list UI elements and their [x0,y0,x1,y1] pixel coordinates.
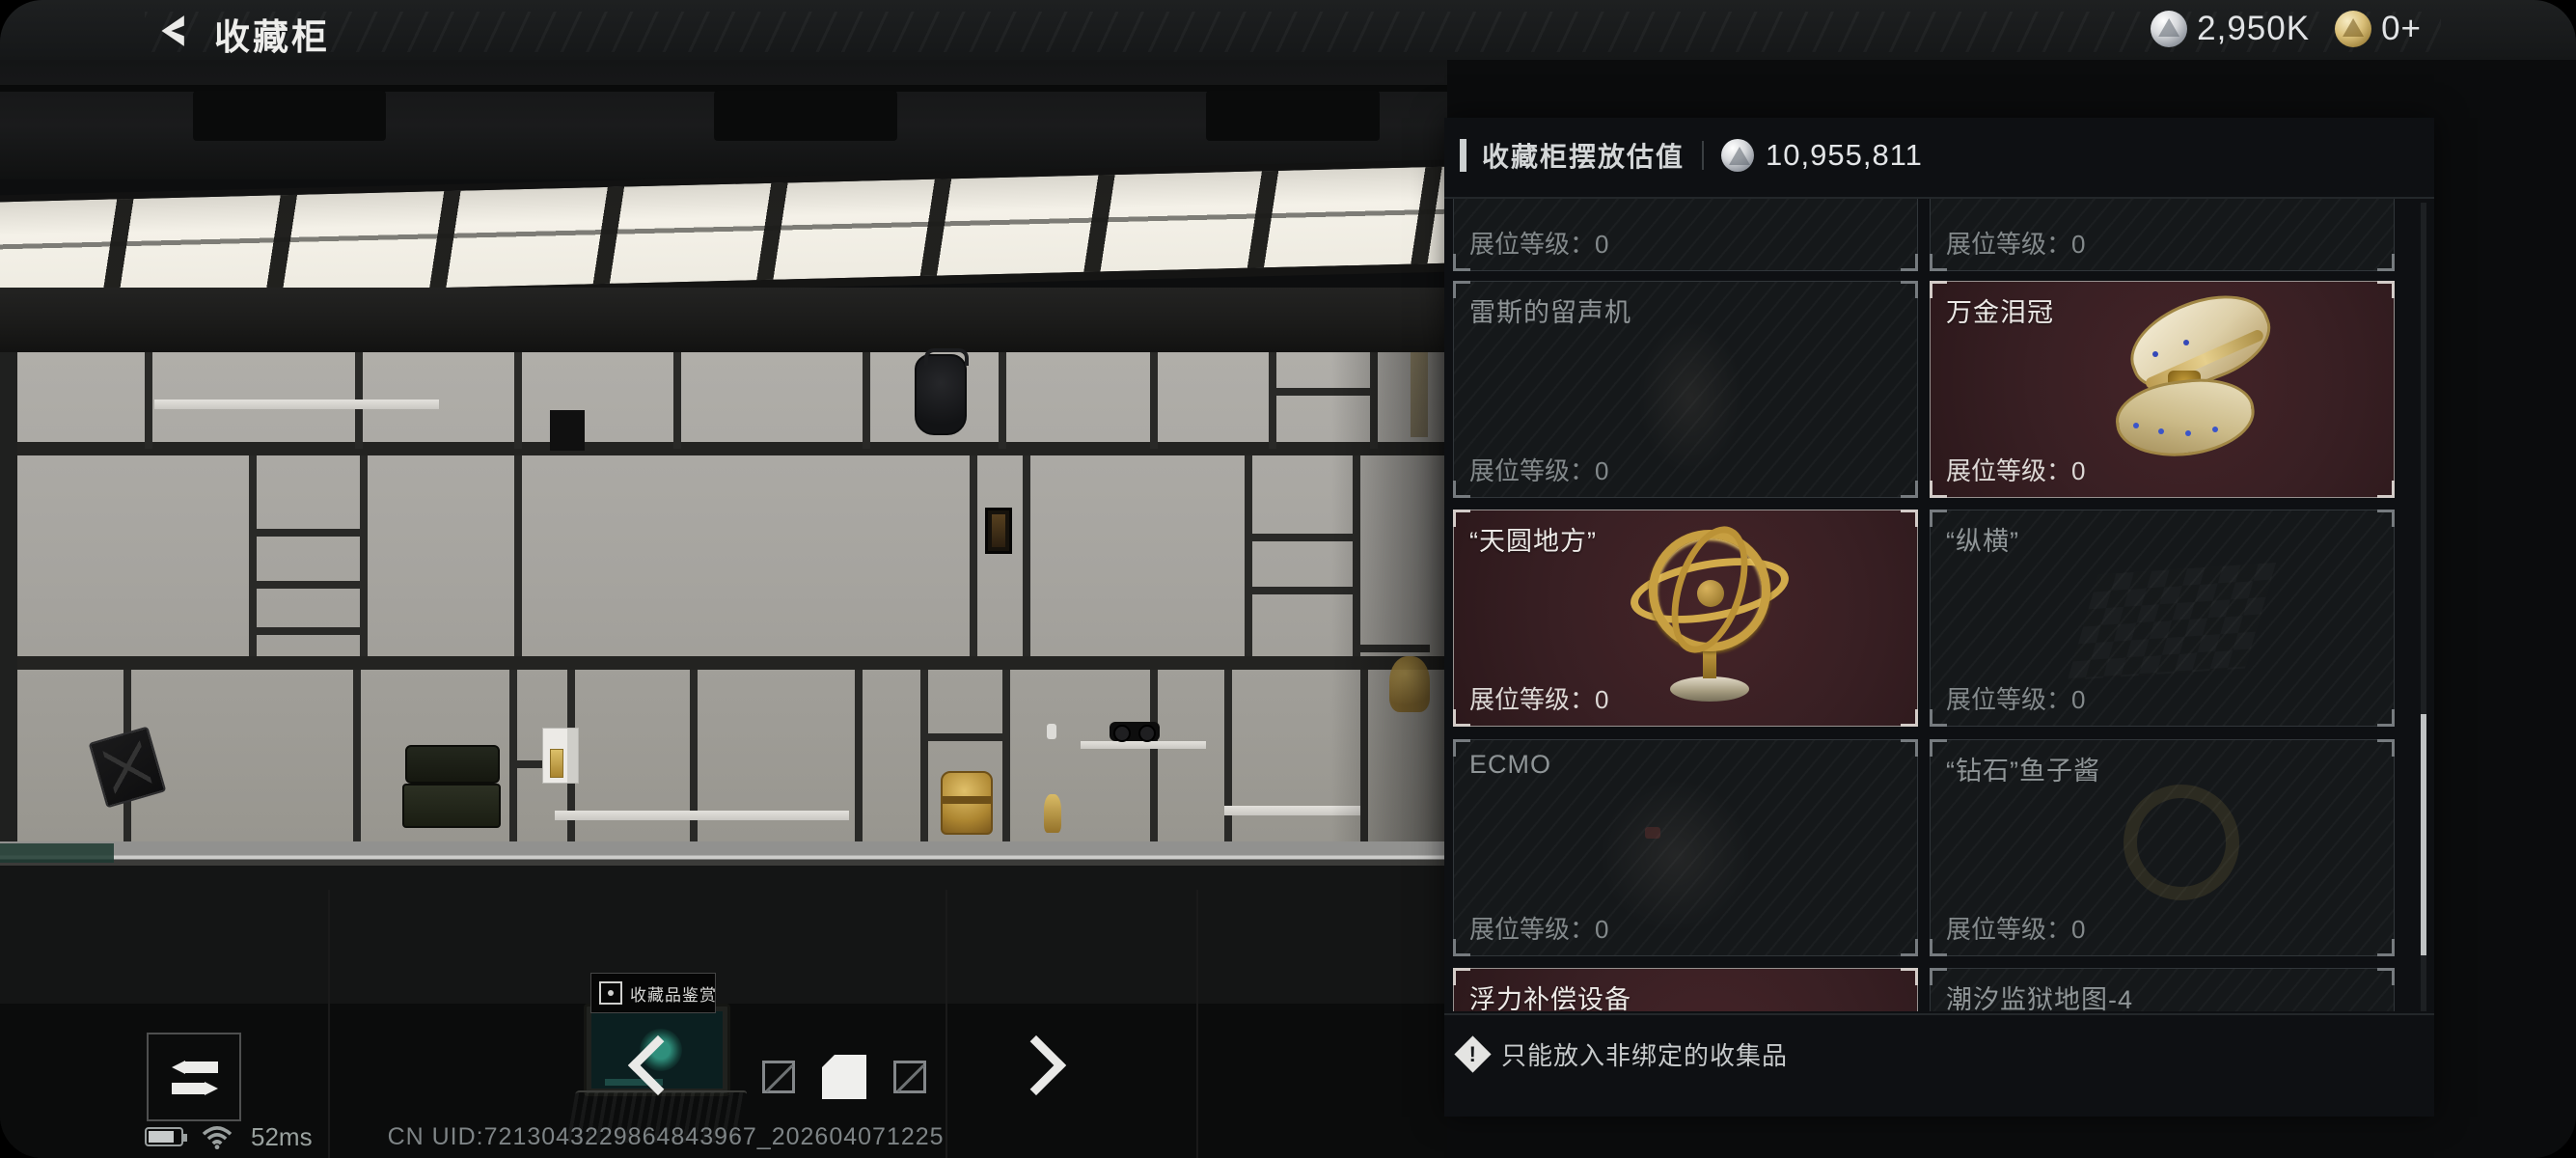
wall-grid-line [920,733,1010,741]
wall-grid-line [145,352,152,449]
swap-view-button[interactable] [147,1033,241,1121]
scene-item-picture-frame [985,508,1012,554]
jeweled-crown-box-image [2095,299,2288,482]
ecmo-ghost-image [1599,779,1753,933]
silver-currency-value: 2,950K [2197,10,2310,48]
cabinet-base [0,866,1447,1004]
card-name: 潮汐监狱地图-4 [1946,979,2133,1011]
collection-list: 展位等级：0 展位等级：0 雷斯的留声机 展位等级：0 万金泪冠 展位等 [1444,199,2434,1011]
notice-text: 只能放入非绑定的收集品 [1501,1036,1788,1072]
card-name: ECMO [1469,750,1551,780]
wall-grid-line [1002,670,1010,841]
caviar-ghost-image [2124,785,2239,900]
armillary-sphere-image [1620,524,1803,717]
collection-card-buoyancy-device[interactable]: 浮力补偿设备 展位等级：0 [1453,968,1918,1011]
top-bar-stripes [145,12,2441,52]
scene-item-binoculars [1110,722,1160,741]
wall-grid-line [863,352,870,449]
currency-gold[interactable]: 0+ [2335,10,2422,48]
collection-card-chessboard[interactable]: “纵横” 展位等级：0 [1930,510,2395,727]
collection-card-ecmo[interactable]: ECMO 展位等级：0 [1453,739,1918,956]
uid-text: CN UID:7213043229864843967_202604071225 [388,1123,945,1151]
silver-coin-icon [1721,139,1754,172]
wall-grid-line [353,670,361,841]
card-name: “钻石”鱼子酱 [1946,750,2100,787]
collection-card-tide-prison-map[interactable]: 潮汐监狱地图-4 展位等级：0 [1930,968,2395,1011]
collection-card-phonograph[interactable]: 雷斯的留声机 展位等级：0 [1453,281,1918,498]
wall-shadow [1331,352,1447,841]
counter-mat [0,843,114,863]
card-level: 展位等级：0 [1946,452,2085,487]
card-level: 展位等级：0 [1946,680,2085,716]
card-level: 展位等级：0 [1469,225,1608,261]
wall-grid-line [1150,352,1158,449]
wall-grid-line [249,455,257,656]
collection-card-caviar[interactable]: “钻石”鱼子酱 展位等级：0 [1930,739,2395,956]
collection-card-1[interactable]: 展位等级：0 [1930,199,2395,271]
page-indicators [762,1052,926,1102]
ceiling-vent [714,91,897,141]
back-chevron-icon [154,10,193,52]
wall-grid-line [999,352,1006,449]
valuation-value: 10,955,811 [1766,138,1923,173]
scene-item-black-box [550,410,585,451]
valuation-title: 收藏柜摆放估值 [1482,136,1685,175]
gold-currency-value: 0+ [2381,10,2422,48]
wall-grid-line [1269,352,1276,449]
scene-item-gold-card [550,749,563,778]
card-level: 展位等级：0 [1469,452,1608,487]
wall-grid-line [920,670,928,841]
page-dot-1[interactable] [762,1061,795,1093]
wall-grid-line [249,529,368,537]
scene-item-backpack [915,354,967,435]
collection-card-jeweled-crown-box[interactable]: 万金泪冠 展位等级：0 [1930,281,2395,498]
game-screen: 收藏品鉴赏 收藏柜 2,950K [0,0,2576,1158]
scene-item-gold-figurine [1044,794,1061,833]
alert-diamond-icon: ! [1454,1035,1491,1072]
card-name: 万金泪冠 [1946,291,2054,329]
shelf-board [1081,741,1206,749]
page-dot-3[interactable] [893,1061,926,1093]
wall-grid-line [970,455,977,656]
swap-arrows-icon [172,1060,218,1096]
collectible-frame-icon [599,981,622,1005]
collection-panel: 收藏柜摆放估值 10,955,811 展位等级：0 展位等级：0 雷斯 [1444,118,2434,1117]
notice-divider [1444,1013,2434,1015]
card-name: 雷斯的留声机 [1469,291,1631,329]
phonograph-ghost-image [1637,320,1743,475]
scene-item-small-figure [1047,724,1056,739]
card-name: 浮力补偿设备 [1469,979,1631,1011]
shelf-board [555,811,849,820]
wall-grid-line [1150,670,1158,841]
notice-row: ! 只能放入非绑定的收集品 [1460,1036,1788,1072]
wall-grid-line [1023,455,1030,656]
ping-value: 52ms [251,1122,313,1152]
battery-icon [145,1127,183,1146]
status-bar: 52ms CN UID:7213043229864843967_20260407… [145,1117,945,1156]
ceiling-vent [193,91,386,141]
currency-bar: 2,950K 0+ [2151,10,2422,48]
gold-coin-icon [2335,11,2371,47]
card-level: 展位等级：0 [1946,910,2085,946]
page-dot-2-active[interactable] [822,1055,866,1099]
currency-silver[interactable]: 2,950K [2151,10,2310,48]
wall-grid-line [249,627,368,635]
silver-coin-icon [2151,11,2187,47]
scene-item-briefcase [402,784,501,828]
top-bar: 收藏柜 2,950K 0+ [0,0,2576,60]
card-level: 展位等级：0 [1469,910,1608,946]
floor-seam [1196,890,1198,1158]
floor-seam [945,890,947,1158]
wall-grid-line [360,455,368,656]
chessboard-ghost-image [2068,563,2276,680]
ceiling-beam [0,288,1447,352]
scene-item-gold-chest [941,771,993,835]
card-name: “纵横” [1946,520,2019,558]
collection-card-0[interactable]: 展位等级：0 [1453,199,1918,271]
wall-corner [0,352,17,841]
wall-grid-line [1245,455,1252,656]
card-level: 展位等级：0 [1946,225,2085,261]
page-title: 收藏柜 [214,8,330,60]
back-button[interactable] [147,8,201,54]
wall-grid-line [673,352,681,449]
scene-item-plaque [89,727,167,809]
terminal-tag[interactable]: 收藏品鉴赏 [590,973,716,1013]
accent-bar [1460,139,1466,172]
header-divider [1702,141,1704,170]
scene-item-briefcase-lid [405,745,500,784]
wall-grid-line [514,455,522,656]
wall-rail [0,656,1447,670]
wall-rail [0,442,1447,455]
list-scrollbar-thumb[interactable] [2421,714,2426,955]
wifi-icon [201,1123,233,1150]
display-counter [0,841,1447,866]
collection-card-armillary-sphere[interactable]: “天圆地方” 展位等级：0 [1453,510,1918,727]
skylight-panels [0,159,1477,308]
card-level: 展位等级：0 [1469,680,1608,716]
valuation-header: 收藏柜摆放估值 10,955,811 [1444,118,2434,193]
wall-grid-line [509,670,517,841]
terminal-tag-label: 收藏品鉴赏 [630,981,717,1006]
display-room-scene: 收藏品鉴赏 [0,60,1447,1158]
card-name: “天圆地方” [1469,520,1597,558]
wall-grid-line [249,581,368,589]
display-wall [0,352,1447,841]
shelf-board [154,400,439,409]
wall-grid-line [855,670,863,841]
wall-grid-line [514,352,522,449]
ceiling [0,60,1447,179]
ceiling-vent [1206,91,1380,141]
wall-grid-line [1224,670,1232,841]
